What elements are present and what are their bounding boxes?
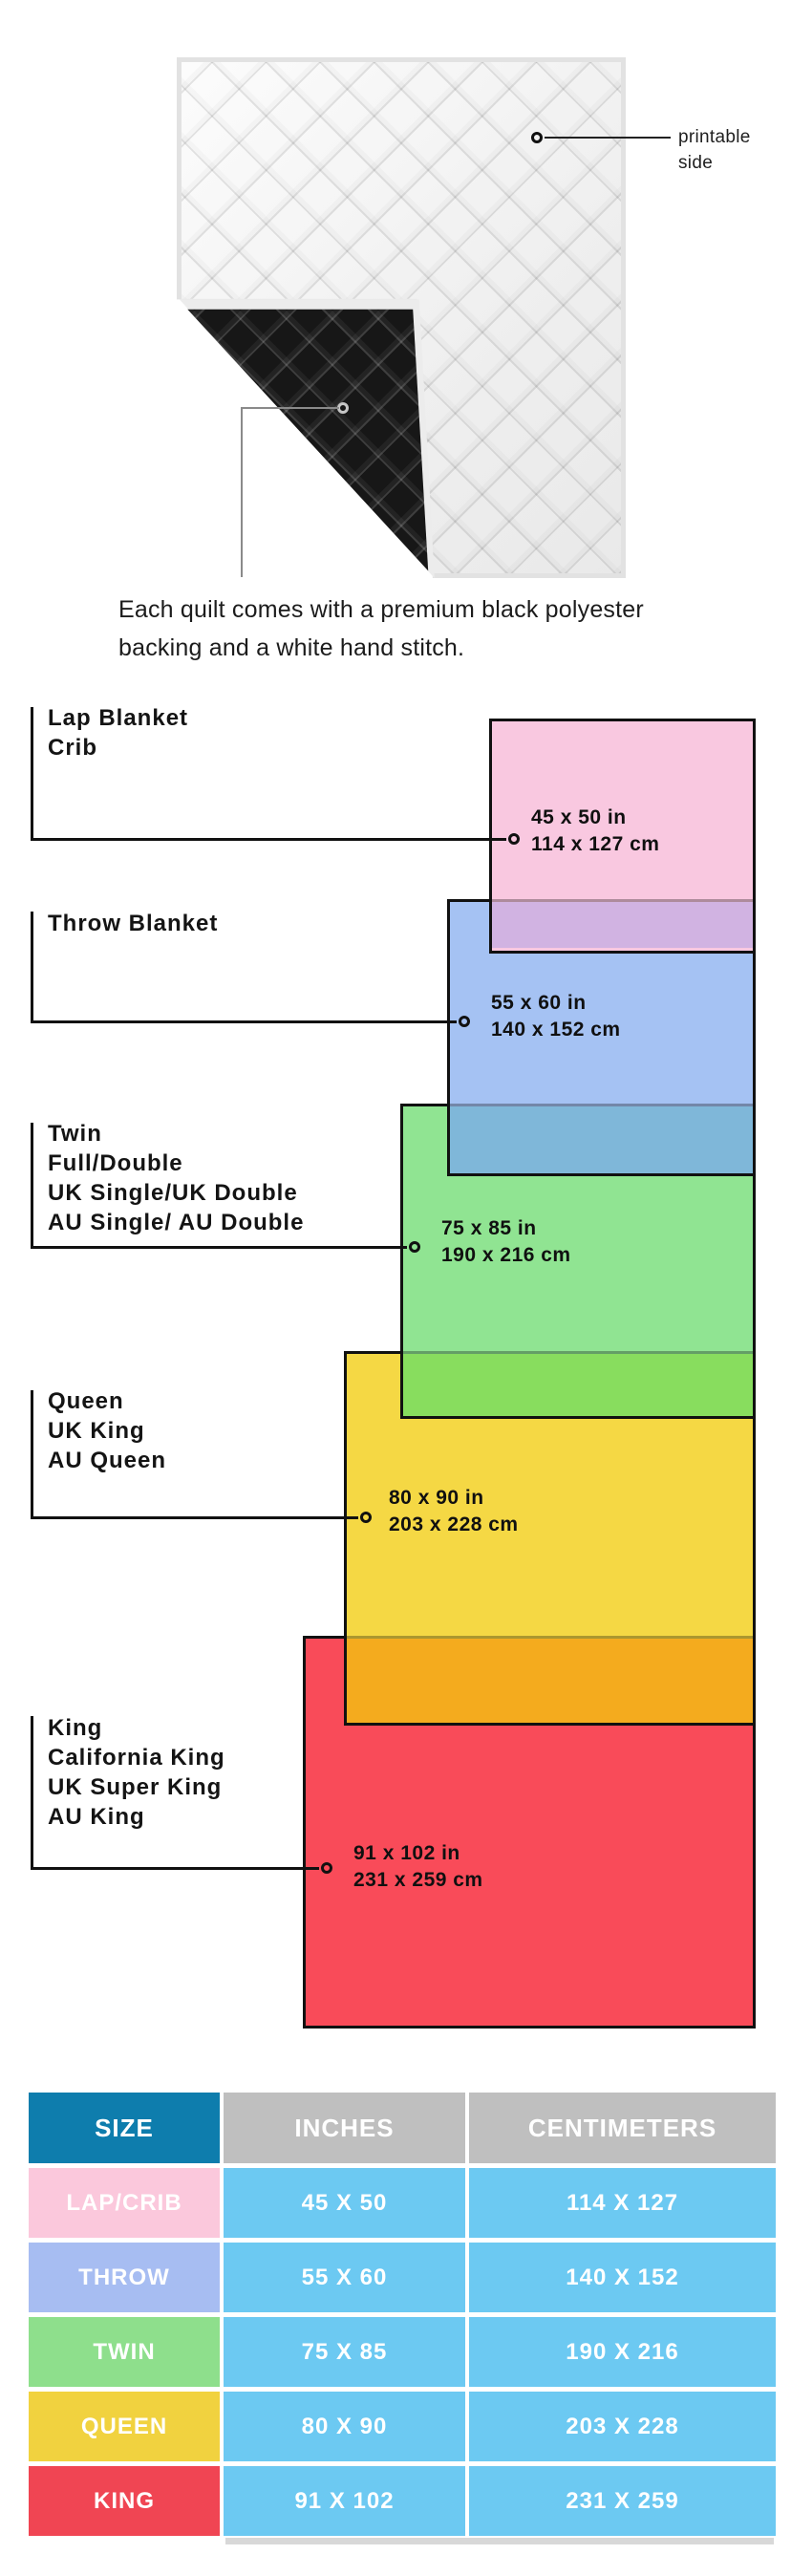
leader-lap-horizontal: [31, 838, 506, 841]
leader-queen-marker-icon: [360, 1512, 372, 1523]
leader-queen-horizontal: [31, 1516, 358, 1519]
table-row-king-label: KING: [29, 2466, 220, 2536]
table-row-lap-inches: 45 X 50: [224, 2168, 465, 2238]
dims-queen-cm: 203 x 228 cm: [389, 1512, 519, 1538]
overlap-lap-throw: [492, 902, 753, 948]
table-row-lap-cm: 114 X 127: [469, 2168, 776, 2238]
leader-twin-vertical: [31, 1123, 33, 1248]
quilt-size-chart-page: printable side Each quilt comes with a p…: [0, 0, 791, 2576]
overlap-queen-king: [347, 1639, 753, 1723]
table-header-inches: INCHES: [224, 2093, 465, 2163]
table-row-queen-inches: 80 X 90: [224, 2392, 465, 2461]
label-king-line1: King: [48, 1713, 225, 1743]
table-header-size: SIZE: [29, 2093, 220, 2163]
table-row-queen-label: QUEEN: [29, 2392, 220, 2461]
label-twin: Twin Full/Double UK Single/UK Double AU …: [48, 1119, 304, 1237]
label-queen: Queen UK King AU Queen: [48, 1386, 166, 1475]
label-king-line3: UK Super King: [48, 1772, 225, 1802]
label-king: King California King UK Super King AU Ki…: [48, 1713, 225, 1832]
dims-king-inches: 91 x 102 in: [353, 1840, 483, 1867]
dims-throw: 55 x 60 in 140 x 152 cm: [491, 990, 621, 1043]
leader-throw-horizontal: [31, 1020, 457, 1023]
dims-lap-cm: 114 x 127 cm: [531, 831, 659, 858]
label-twin-line2: Full/Double: [48, 1148, 304, 1178]
printable-side-label: printable side: [678, 124, 785, 176]
table-header-centimeters: CENTIMETERS: [469, 2093, 776, 2163]
label-lap-line2: Crib: [48, 733, 188, 762]
printable-side-leader-line: [545, 137, 671, 139]
dims-lap-inches: 45 x 50 in: [531, 805, 659, 831]
label-king-line2: California King: [48, 1743, 225, 1772]
label-twin-line3: UK Single/UK Double: [48, 1178, 304, 1208]
leader-lap-vertical: [31, 707, 33, 840]
dims-king: 91 x 102 in 231 x 259 cm: [353, 1840, 483, 1894]
backing-leader-line-vertical: [241, 407, 243, 577]
overlap-throw-twin: [450, 1106, 753, 1173]
label-twin-line4: AU Single/ AU Double: [48, 1208, 304, 1237]
label-throw-line1: Throw Blanket: [48, 909, 218, 938]
backing-caption: Each quilt comes with a premium black po…: [118, 590, 711, 667]
leader-throw-vertical: [31, 912, 33, 1022]
label-lap: Lap Blanket Crib: [48, 703, 188, 762]
dims-queen: 80 x 90 in 203 x 228 cm: [389, 1485, 519, 1538]
dims-twin-inches: 75 x 85 in: [441, 1215, 571, 1242]
dims-twin: 75 x 85 in 190 x 216 cm: [441, 1215, 571, 1269]
dims-twin-cm: 190 x 216 cm: [441, 1242, 571, 1269]
label-queen-line1: Queen: [48, 1386, 166, 1416]
table-bottom-shadow: [225, 2538, 774, 2544]
quilt-illustration: [177, 57, 626, 578]
leader-throw-marker-icon: [459, 1016, 470, 1027]
overlap-twin-queen: [403, 1354, 753, 1416]
leader-lap-marker-icon: [508, 833, 520, 845]
leader-king-horizontal: [31, 1867, 319, 1870]
label-lap-line1: Lap Blanket: [48, 703, 188, 733]
leader-king-marker-icon: [321, 1862, 332, 1874]
printable-side-marker-icon: [531, 132, 543, 143]
leader-twin-marker-icon: [409, 1241, 420, 1253]
label-queen-line3: AU Queen: [48, 1446, 166, 1475]
dims-king-cm: 231 x 259 cm: [353, 1867, 483, 1894]
dims-throw-inches: 55 x 60 in: [491, 990, 621, 1017]
dims-queen-inches: 80 x 90 in: [389, 1485, 519, 1512]
leader-queen-vertical: [31, 1390, 33, 1518]
backing-leader-line-horizontal: [242, 407, 339, 409]
table-row-king-cm: 231 X 259: [469, 2466, 776, 2536]
dims-throw-cm: 140 x 152 cm: [491, 1017, 621, 1043]
dims-lap: 45 x 50 in 114 x 127 cm: [531, 805, 659, 858]
leader-twin-horizontal: [31, 1246, 407, 1249]
label-twin-line1: Twin: [48, 1119, 304, 1148]
table-row-throw-inches: 55 X 60: [224, 2243, 465, 2312]
table-row-throw-label: THROW: [29, 2243, 220, 2312]
table-row-twin-cm: 190 X 216: [469, 2317, 776, 2387]
leader-king-vertical: [31, 1716, 33, 1869]
table-row-throw-cm: 140 X 152: [469, 2243, 776, 2312]
label-queen-line2: UK King: [48, 1416, 166, 1446]
table-row-twin-label: TWIN: [29, 2317, 220, 2387]
label-king-line4: AU King: [48, 1802, 225, 1832]
table-row-queen-cm: 203 X 228: [469, 2392, 776, 2461]
table-row-king-inches: 91 X 102: [224, 2466, 465, 2536]
table-row-lap-label: LAP/CRIB: [29, 2168, 220, 2238]
label-throw: Throw Blanket: [48, 909, 218, 938]
table-row-twin-inches: 75 X 85: [224, 2317, 465, 2387]
